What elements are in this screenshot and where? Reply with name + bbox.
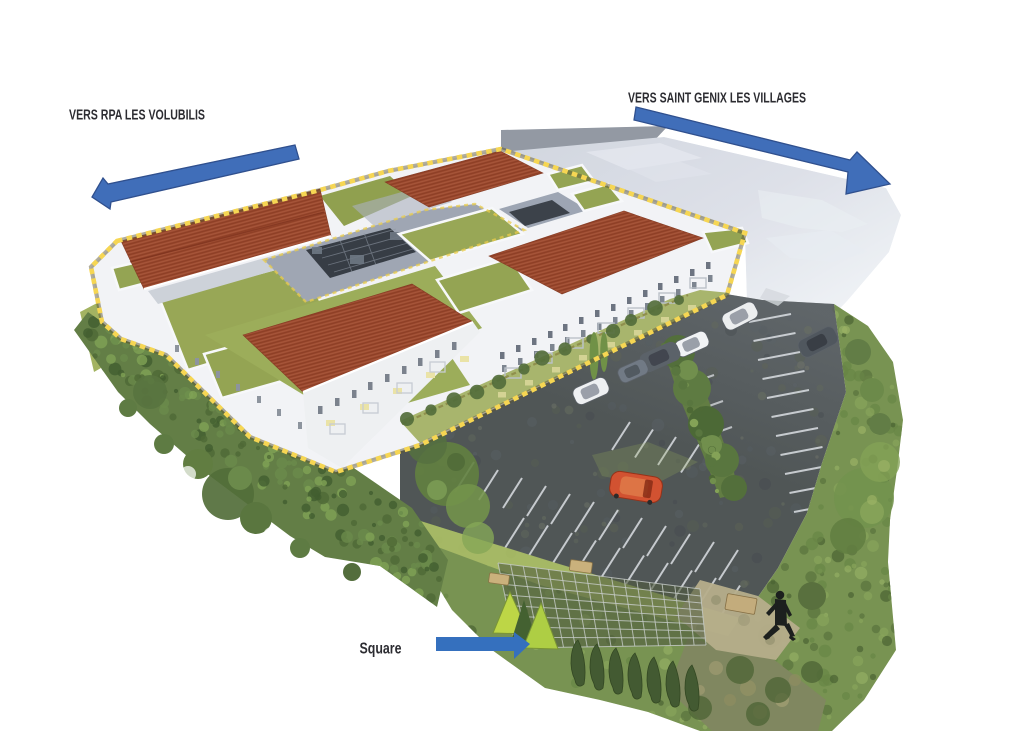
svg-text:VERS RPA LES VOLUBILIS: VERS RPA LES VOLUBILIS	[69, 107, 205, 124]
svg-text:Square: Square	[360, 641, 402, 658]
svg-text:VERS SAINT GENIX LES VILLAGES: VERS SAINT GENIX LES VILLAGES	[628, 91, 806, 107]
